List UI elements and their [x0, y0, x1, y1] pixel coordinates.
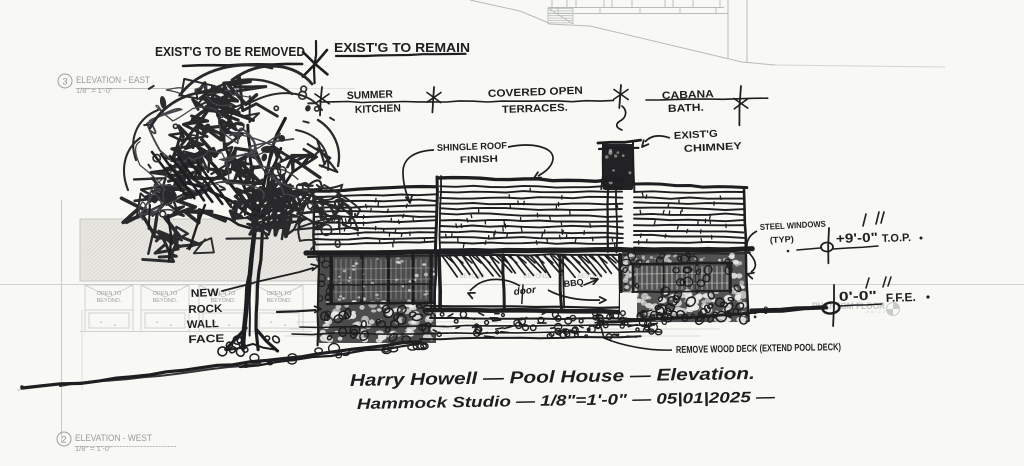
svg-text:BEYOND.: BEYOND. — [267, 298, 292, 304]
svg-text:+9'-0": +9'-0" — [836, 230, 878, 246]
svg-text:KITCHEN: KITCHEN — [355, 102, 401, 116]
svg-text:OPEN TO: OPEN TO — [153, 291, 178, 297]
svg-text:2: 2 — [61, 435, 66, 445]
svg-text:BEYOND.: BEYOND. — [97, 298, 122, 304]
svg-text:WALL: WALL — [187, 318, 220, 331]
svg-text:(TYP): (TYP) — [770, 234, 795, 245]
svg-text:FINISH: FINISH — [460, 154, 499, 166]
svg-text:T.O.P.: T.O.P. — [882, 232, 912, 245]
svg-text:EXIST'G: EXIST'G — [674, 129, 719, 142]
svg-text:BATH.: BATH. — [668, 102, 704, 115]
svg-text:CABANA: CABANA — [662, 88, 715, 102]
svg-text:ROCK: ROCK — [188, 303, 222, 316]
svg-text:OPEN TO: OPEN TO — [267, 291, 292, 297]
svg-text:SUMMER: SUMMER — [347, 88, 394, 102]
svg-text:A A I 2 2: A A I 2 2 — [866, 309, 885, 314]
svg-text:TERRACES.: TERRACES. — [502, 102, 568, 116]
svg-text:1/8" = 1'-0": 1/8" = 1'-0" — [76, 86, 113, 95]
svg-text:ELEVATION - WEST: ELEVATION - WEST — [75, 433, 152, 443]
svg-text:ELEVATION - EAST: ELEVATION - EAST — [76, 75, 150, 85]
svg-text:BEYOND.: BEYOND. — [153, 298, 178, 304]
svg-text:3: 3 — [62, 77, 67, 87]
svg-text:0'-0": 0'-0" — [839, 288, 878, 304]
svg-text:F.F.E.: F.F.E. — [886, 290, 916, 305]
svg-text:BBQ: BBQ — [563, 277, 584, 289]
svg-text:1/8" = 1'-0": 1/8" = 1'-0" — [75, 444, 112, 453]
svg-text:BEYOND: BEYOND — [523, 274, 549, 280]
svg-text:FACE: FACE — [188, 333, 224, 346]
svg-text:NEW: NEW — [191, 287, 220, 300]
svg-text:EXIST'G TO REMAIN: EXIST'G TO REMAIN — [334, 40, 470, 55]
svg-text:EXIST'G TO BE REMOVED: EXIST'G TO BE REMOVED — [155, 44, 305, 59]
svg-text:OPEN TO: OPEN TO — [97, 291, 122, 297]
